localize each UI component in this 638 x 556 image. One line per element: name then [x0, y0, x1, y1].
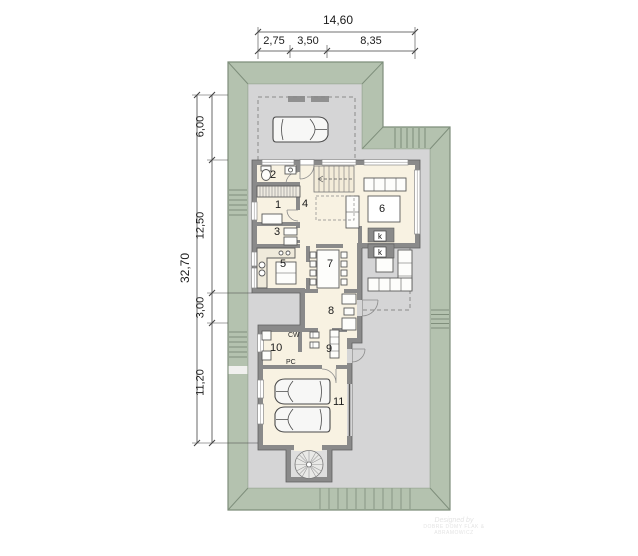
watermark-line1: Designed by — [404, 517, 504, 524]
car-icon-garage-1 — [275, 379, 330, 404]
floor-plan-page: 14,60 2,75 3,50 8,35 32,70 6,00 12,50 3,… — [0, 0, 638, 556]
dim-top-segment-1: 2,75 — [260, 36, 288, 47]
dim-left-segment-3: 3,00 — [196, 286, 207, 330]
hall-cabinet-icon — [342, 294, 356, 330]
room-label-9: 9 — [326, 344, 332, 355]
watermark: Designed by DOBRE DOMY FLAK & ABRAMOWICZ — [404, 517, 504, 536]
duct-label-2: k — [374, 249, 386, 257]
washer-label: CW — [288, 332, 300, 339]
room-label-8: 8 — [328, 306, 334, 317]
alcove-door-gap — [294, 444, 322, 451]
room-label-7: 7 — [327, 259, 333, 270]
room-label-5: 5 — [280, 259, 286, 270]
dim-left-segment-1: 6,00 — [196, 105, 207, 149]
dim-top-segment-2: 3,50 — [294, 36, 322, 47]
dim-left-segment-2: 12,50 — [196, 204, 207, 248]
wardrobe-icon — [257, 186, 300, 197]
room-label-6: 6 — [379, 204, 385, 215]
dim-total-height-label: 32,70 — [179, 246, 191, 290]
floor-plan-drawing — [0, 0, 638, 556]
washer-icon — [262, 331, 271, 340]
room-label-4: 4 — [302, 199, 308, 210]
furnace-label: PC — [286, 359, 296, 366]
dim-left-segment-4: 11,20 — [196, 361, 207, 405]
dim-top-segment-3: 8,35 — [357, 36, 385, 47]
car-icon-courtyard — [273, 117, 328, 142]
dim-total-width-label: 14,60 — [316, 14, 360, 26]
room-label-2: 2 — [270, 170, 276, 181]
walkway-gap — [229, 366, 248, 374]
room-label-10: 10 — [270, 343, 282, 354]
duct-label-1: k — [374, 233, 386, 241]
spiral-staircase-icon — [295, 451, 323, 479]
sink-icon — [285, 166, 296, 174]
watermark-line2: DOBRE DOMY FLAK & ABRAMOWICZ — [404, 524, 504, 536]
car-icon-garage-2 — [275, 407, 330, 432]
bench-icon — [262, 214, 282, 224]
room-label-11: 11 — [333, 397, 344, 408]
room-label-3: 3 — [274, 227, 280, 238]
room-label-1: 1 — [275, 200, 281, 211]
